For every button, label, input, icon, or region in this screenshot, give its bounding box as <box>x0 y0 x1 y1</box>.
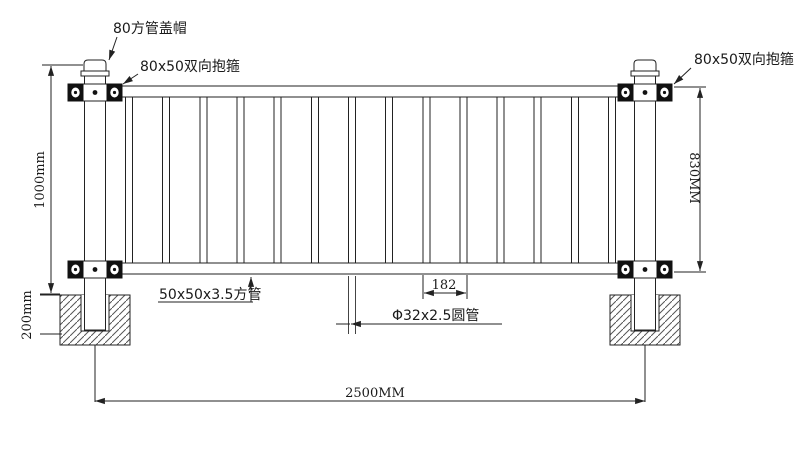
vertical-bar <box>349 97 356 263</box>
vertical-bar <box>497 97 504 263</box>
label-square-tube: 50x50x3.5方管 <box>158 277 261 303</box>
vertical-bar <box>312 97 319 263</box>
vertical-bar <box>572 97 579 263</box>
dim-total-height-text: 1000mm <box>33 151 48 209</box>
top-rail <box>106 86 634 97</box>
fence-technical-drawing: 1000mm 830MM 200mm 2500MM 182 80方管盖帽 80x… <box>0 0 800 461</box>
label-clamp-left: 80x50双向抱箍 <box>123 58 240 84</box>
dim-bar-spacing: 182 <box>423 275 467 299</box>
label-post-cap: 80方管盖帽 <box>109 21 187 60</box>
dim-embed-depth-text: 200mm <box>20 290 35 339</box>
vertical-bar <box>423 97 430 263</box>
right-post-cap <box>631 60 659 76</box>
vertical-bar <box>163 97 170 263</box>
dim-embed-depth: 200mm <box>20 290 62 339</box>
label-round-tube-text: Φ32x2.5圆管 <box>392 308 479 324</box>
bottom-rail <box>106 263 634 274</box>
vertical-bar <box>126 97 133 263</box>
vertical-bar <box>200 97 207 263</box>
label-round-tube: Φ32x2.5圆管 <box>336 276 502 334</box>
vertical-bar <box>534 97 541 263</box>
dim-total-width-text: 2500MM <box>345 386 405 401</box>
vertical-bar <box>237 97 244 263</box>
dim-total-width: 2500MM <box>95 345 645 402</box>
label-post-cap-text: 80方管盖帽 <box>113 21 187 37</box>
left-bottom-clamp <box>68 261 122 278</box>
drawing-canvas: 1000mm 830MM 200mm 2500MM 182 80方管盖帽 80x… <box>0 0 800 461</box>
dim-panel-height-text: 830MM <box>686 152 701 203</box>
vertical-bars <box>126 97 616 263</box>
vertical-bar <box>609 97 616 263</box>
vertical-bar <box>386 97 393 263</box>
label-clamp-right-text: 80x50双向抱箍 <box>694 51 794 68</box>
dim-panel-height: 830MM <box>674 87 706 272</box>
label-clamp-right: 80x50双向抱箍 <box>674 51 794 84</box>
label-clamp-left-text: 80x50双向抱箍 <box>140 58 240 75</box>
right-top-clamp <box>618 84 672 101</box>
right-post <box>635 75 656 330</box>
left-post <box>85 75 106 330</box>
left-top-clamp <box>68 84 122 101</box>
left-post-cap <box>81 60 109 76</box>
right-bottom-clamp <box>618 261 672 278</box>
vertical-bar <box>460 97 467 263</box>
label-square-tube-text: 50x50x3.5方管 <box>159 287 261 303</box>
dim-bar-spacing-text: 182 <box>432 278 457 293</box>
vertical-bar <box>274 97 281 263</box>
